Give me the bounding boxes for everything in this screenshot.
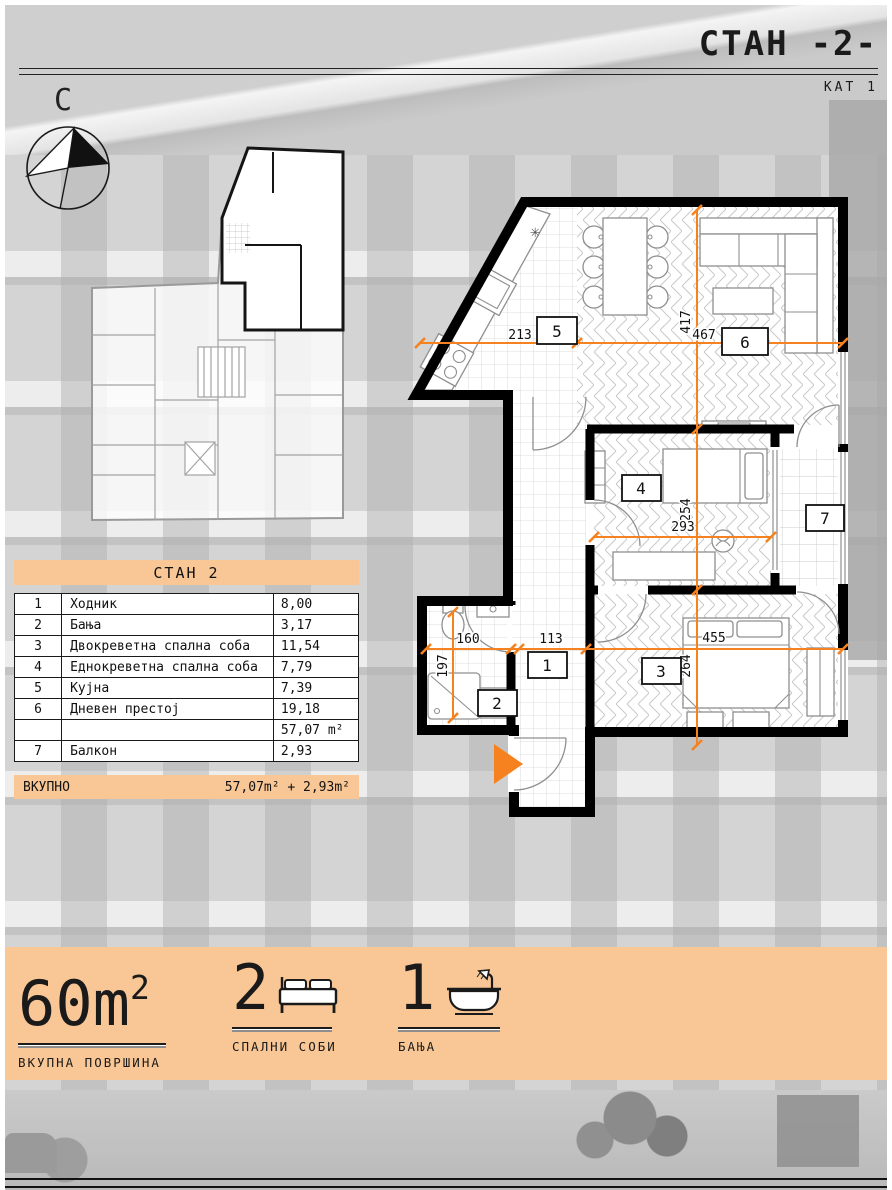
table-row: 5Кујна7,39 xyxy=(15,678,359,699)
floor-label: КАТ 1 xyxy=(824,80,878,95)
dim-bedroom4-width: 293 xyxy=(671,520,694,535)
building-overview-plan xyxy=(85,135,370,550)
room-label-living: 6 xyxy=(740,333,750,352)
room-label-balcony: 7 xyxy=(820,509,830,528)
table-row: 2Бања3,17 xyxy=(15,615,359,636)
room-label-bed3: 3 xyxy=(656,662,666,681)
dim-bedroom3-width: 455 xyxy=(702,631,725,646)
stat-underline xyxy=(232,1027,332,1032)
dim-bathroom-width: 160 xyxy=(456,632,479,647)
table-row: 3Двокреветна спална соба11,54 xyxy=(15,636,359,657)
header-divider xyxy=(19,68,878,75)
stats-band: 60m2 ВКУПНА ПОВРШИНА 2 СПАЛНИ СОБИ 1 xyxy=(5,947,887,1080)
stat-bedrooms: 2 СПАЛНИ СОБИ xyxy=(232,957,339,1054)
room-label-hall: 1 xyxy=(542,656,552,675)
dim-living-height: 417 xyxy=(679,310,694,333)
dim-bathroom-height: 197 xyxy=(436,654,451,677)
apartment-floor-plan: ✳ xyxy=(405,188,892,825)
dim-living-width: 467 xyxy=(692,328,715,343)
svg-text:✳: ✳ xyxy=(530,222,540,242)
dim-hall-width: 113 xyxy=(539,632,562,647)
stat-bathrooms: 1 БАЊА xyxy=(398,957,505,1054)
room-label-bed4: 4 xyxy=(636,479,646,498)
stat-underline xyxy=(398,1027,500,1032)
room-label-bath: 2 xyxy=(492,694,502,713)
table-header: СТАН 2 xyxy=(14,560,359,585)
total-value: 57,07m² + 2,93m² xyxy=(225,780,350,795)
page-title-number: -2- xyxy=(811,24,878,64)
total-bar: ВКУПНО 57,07m² + 2,93m² xyxy=(14,775,359,799)
bathtub-icon xyxy=(443,967,505,1019)
table-row: 7Балкон2,93 xyxy=(15,741,359,762)
page-title: СТАН -2- xyxy=(699,24,878,64)
stat-bathrooms-label: БАЊА xyxy=(398,1039,505,1054)
hallway-floor xyxy=(512,391,586,808)
total-label: ВКУПНО xyxy=(23,780,70,795)
areas-table: 1Ходник8,00 2Бања3,17 3Двокреветна спалн… xyxy=(14,593,359,762)
table-row: 1Ходник8,00 xyxy=(15,594,359,615)
stat-bedrooms-label: СПАЛНИ СОБИ xyxy=(232,1039,339,1054)
table-row: 4Еднокреветна спална соба7,79 xyxy=(15,657,359,678)
room-label-kitchen: 5 xyxy=(552,322,562,341)
bed-icon xyxy=(277,969,339,1019)
table-row: 6Дневен престој19,18 xyxy=(15,699,359,720)
coffee-table xyxy=(713,288,773,314)
dining-set xyxy=(583,218,668,315)
footer-divider xyxy=(5,1178,887,1188)
stat-total-area: 60m2 ВКУПНА ПОВРШИНА xyxy=(18,957,166,1070)
stat-area-sup: 2 xyxy=(130,968,150,1007)
photo-street xyxy=(5,1090,887,1190)
photo-entrance xyxy=(777,1095,859,1167)
photo-car xyxy=(5,1133,57,1173)
north-letter: С xyxy=(54,83,72,118)
stat-area-value: 60m xyxy=(18,967,130,1040)
stat-bedrooms-value: 2 xyxy=(232,957,269,1019)
stat-underline xyxy=(18,1043,166,1048)
table-row-subtotal: 57,07 m² xyxy=(15,720,359,741)
dim-bedroom4-height: 254 xyxy=(679,498,694,522)
stat-area-label: ВКУПНА ПОВРШИНА xyxy=(18,1055,166,1070)
apartment-sheet: СТАН -2- КАТ 1 С xyxy=(0,0,892,1190)
stat-bathrooms-value: 1 xyxy=(398,957,435,1019)
page-title-name: СТАН xyxy=(699,24,789,64)
dim-kitchen-width: 213 xyxy=(508,328,531,343)
